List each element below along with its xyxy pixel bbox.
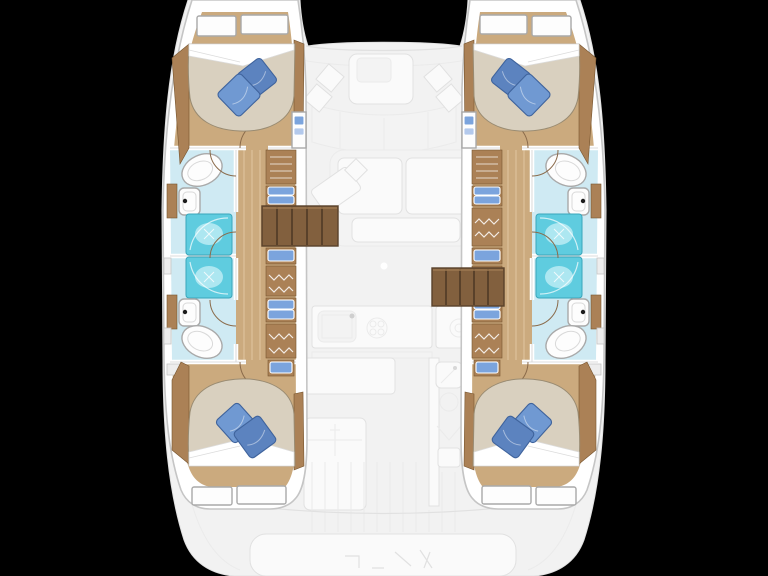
galley-back-counter: [300, 358, 395, 394]
salon-dot: [381, 263, 388, 270]
starboard-hull: [461, 0, 605, 509]
louver-locker: [266, 150, 296, 184]
galley-shelf: [312, 352, 432, 358]
aft-cockpit-bench: [250, 534, 516, 576]
catamaran-floor-plan: [0, 0, 768, 576]
hanging-locker: [266, 266, 296, 296]
storage-cabinets: [266, 150, 296, 376]
galley-faucet: [350, 314, 355, 319]
headboard-panel: [237, 486, 286, 504]
hull-side-panel: [294, 392, 304, 470]
shower-stall: [186, 257, 232, 298]
hull-port-light: [164, 258, 171, 274]
drawer-unit: [266, 248, 296, 264]
hanging-locker: [266, 324, 296, 358]
port-hull: [163, 0, 307, 509]
washbasin: [179, 299, 200, 326]
aisle-box: [438, 448, 460, 467]
headboard-panel: [197, 16, 236, 36]
sofa-seat: [352, 218, 460, 242]
drawer-unit: [266, 298, 296, 322]
vanity-trim: [167, 295, 177, 329]
companionway-stairs-starboard: [432, 268, 504, 306]
wet-bar-dot: [453, 366, 457, 370]
headboard-panel: [192, 487, 232, 505]
shelf-drawer: [294, 128, 304, 135]
floor-plan-canvas: [0, 0, 768, 576]
vanity-trim: [167, 184, 177, 218]
hull-port-light: [164, 328, 171, 344]
shelf-drawer: [294, 116, 304, 125]
forward-cockpit-table-inset: [357, 58, 391, 82]
drawer-unit: [266, 186, 296, 206]
hull-side-panel: [172, 362, 189, 464]
headboard-panel: [241, 15, 288, 34]
companionway-stairs-port: [262, 206, 338, 246]
washbasin: [179, 188, 200, 215]
drawer-unit: [268, 360, 294, 376]
